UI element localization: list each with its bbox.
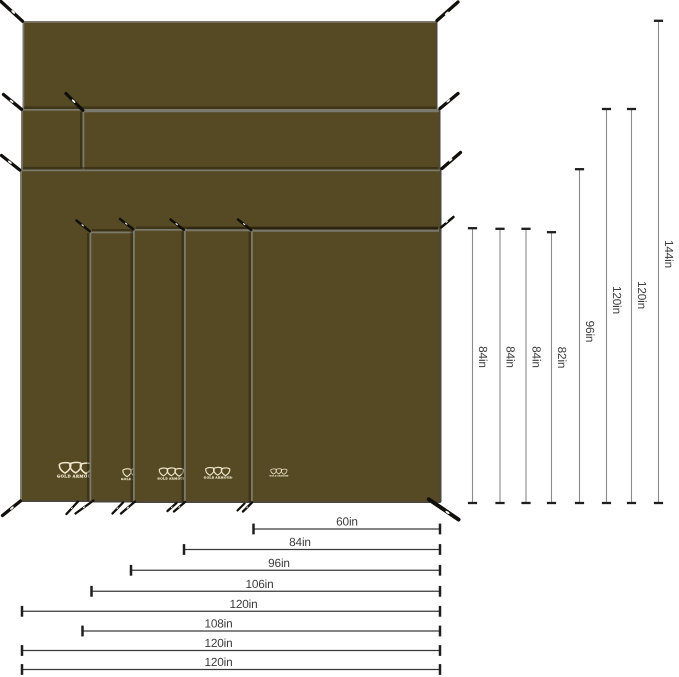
svg-text:120in: 120in <box>635 281 649 309</box>
svg-text:120in: 120in <box>610 286 624 314</box>
svg-text:120in: 120in <box>204 636 232 650</box>
svg-text:120in: 120in <box>229 597 257 611</box>
svg-text:96in: 96in <box>268 556 290 570</box>
svg-text:120in: 120in <box>204 655 232 669</box>
svg-text:60in: 60in <box>336 515 358 529</box>
svg-text:84in: 84in <box>530 346 544 368</box>
svg-text:106in: 106in <box>245 577 273 591</box>
svg-text:96in: 96in <box>583 321 597 343</box>
svg-text:82in: 82in <box>555 347 569 369</box>
svg-text:84in: 84in <box>476 346 490 368</box>
svg-text:144in: 144in <box>662 240 676 268</box>
svg-text:84in: 84in <box>504 346 518 368</box>
svg-text:84in: 84in <box>289 535 311 549</box>
svg-text:108in: 108in <box>204 617 232 631</box>
